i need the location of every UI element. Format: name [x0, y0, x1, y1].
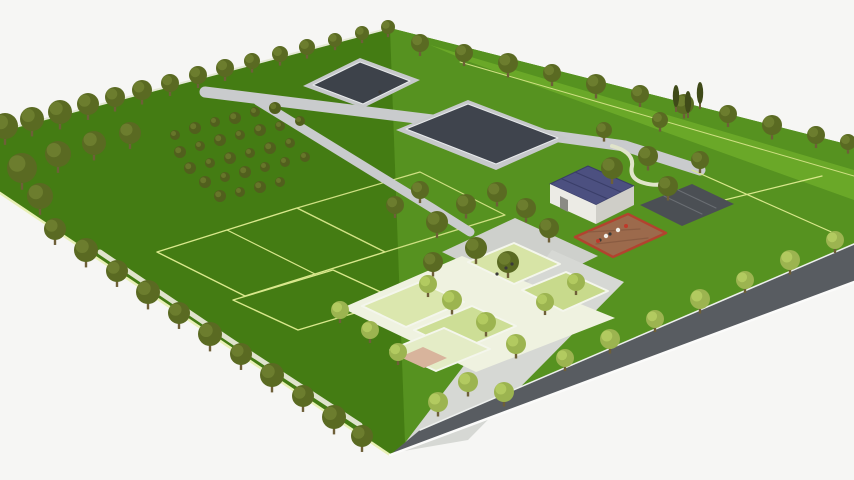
tree-cluster-gardens	[332, 302, 342, 312]
orchard-shrub	[175, 147, 181, 153]
tree-cluster-left-inner	[47, 143, 61, 157]
tree-row-topright-edge	[763, 117, 774, 128]
tree-row-topright-edge	[499, 55, 510, 66]
tree-cluster-left-inner	[120, 124, 132, 136]
orchard-shrub	[246, 149, 251, 154]
orchard-shrub	[215, 191, 221, 197]
tree-row-topright-edge	[632, 86, 642, 96]
tree-row-topleft-edge	[300, 40, 309, 49]
orchard-shrub	[221, 173, 226, 178]
tree-row-topleft-edge	[356, 27, 364, 35]
tree-row-topleft-edge	[106, 89, 117, 100]
tree-hedge-bottomleft-edge	[352, 427, 364, 439]
tree-row-topleft-edge	[162, 75, 172, 85]
tree-row-topleft-edge	[273, 47, 282, 56]
tree-cluster-gardens	[459, 374, 470, 385]
tree-cluster-plaza	[540, 220, 551, 231]
orchard-shrub	[211, 118, 216, 123]
orchard-shrub	[281, 158, 286, 163]
tree-row-topleft-edge	[329, 34, 337, 42]
tree-cluster-left-inner	[9, 155, 26, 172]
orchard-shrub	[251, 108, 256, 113]
orchard-shrub	[270, 103, 276, 109]
tree-cluster-plaza	[387, 197, 397, 207]
tree-row-topright-edge	[456, 45, 466, 55]
orchard-shrub	[261, 163, 266, 168]
tree-cluster-gardens	[429, 394, 440, 405]
orchard-shrub	[265, 143, 271, 149]
tree-row-perimeter-road	[827, 232, 837, 242]
tree-cluster-building-north	[653, 113, 662, 122]
pedestrian-figure	[608, 232, 611, 235]
pedestrian-figure	[510, 262, 513, 265]
tree-cluster-plaza	[488, 184, 499, 195]
tree-cluster-gardens	[537, 294, 547, 304]
tree-hedge-bottomleft-edge	[138, 282, 151, 295]
tree-cluster-building-north	[602, 159, 614, 171]
tree-cluster-building-north	[659, 178, 670, 189]
tree-hedge-bottomleft-edge	[107, 262, 119, 274]
tree-cluster-left-inner	[29, 185, 43, 199]
orchard-shrub	[200, 177, 206, 183]
orchard-shrub	[230, 113, 236, 119]
orchard-shrub	[255, 182, 261, 188]
tree-cluster-gardens	[420, 276, 430, 286]
orchard-shrub	[296, 117, 301, 122]
tree-hedge-bottomleft-edge	[231, 345, 243, 357]
orchard-shrub	[301, 153, 306, 158]
orchard-shrub	[236, 188, 241, 193]
orchard-shrub	[286, 139, 291, 144]
tree-row-topleft-edge	[50, 102, 63, 115]
orchard-shrub	[255, 125, 261, 131]
tree-row-topright-edge	[587, 76, 598, 87]
conifer-tree	[673, 85, 679, 107]
tree-row-topright-edge	[544, 65, 554, 75]
tree-cluster-gardens	[362, 322, 372, 332]
tree-row-perimeter-road	[557, 350, 567, 360]
orchard-shrub	[171, 131, 176, 136]
conifer-tree	[697, 82, 703, 104]
tree-cluster-plaza	[498, 253, 510, 265]
tree-row-topleft-edge	[190, 67, 200, 77]
orchard-shrub	[206, 159, 211, 164]
tree-row-topleft-edge	[382, 21, 390, 29]
tree-hedge-bottomleft-edge	[76, 240, 89, 253]
pedestrian-figure	[495, 272, 498, 275]
tree-cluster-building-north	[692, 152, 702, 162]
tree-row-perimeter-road	[781, 252, 792, 263]
terrace-parasol-white	[604, 234, 608, 238]
tree-cluster-building-north	[597, 123, 606, 132]
tree-cluster-plaza	[412, 182, 422, 192]
terrace-parasol-red	[624, 224, 628, 228]
orchard-shrub	[185, 163, 191, 169]
tree-row-topleft-edge	[78, 95, 90, 107]
tree-row-topleft-edge	[22, 109, 35, 122]
tree-row-perimeter-road	[737, 272, 747, 282]
tree-row-topright-edge	[412, 35, 422, 45]
tree-cluster-plaza	[427, 213, 439, 225]
tree-cluster-plaza	[457, 196, 468, 207]
tree-hedge-bottomleft-edge	[169, 304, 181, 316]
orchard-shrub	[276, 122, 281, 127]
tree-row-topright-edge	[720, 106, 730, 116]
site-plan-render	[0, 0, 854, 480]
pedestrian-figure	[504, 266, 507, 269]
tree-hedge-bottomleft-edge	[293, 387, 305, 399]
tree-cluster-building-north	[639, 148, 650, 159]
tree-row-perimeter-road	[647, 311, 657, 321]
tree-row-topleft-edge	[217, 60, 227, 70]
conifer-tree	[685, 91, 691, 113]
tree-row-perimeter-road	[601, 331, 612, 342]
tree-hedge-bottomleft-edge	[200, 324, 213, 337]
tree-hedge-bottomleft-edge	[45, 220, 57, 232]
tree-hedge-bottomleft-edge	[262, 365, 275, 378]
terrace-parasol-red	[596, 239, 600, 243]
tree-cluster-plaza	[517, 200, 528, 211]
tree-hedge-bottomleft-edge	[324, 407, 337, 420]
tree-cluster-left-inner	[84, 133, 97, 146]
pedestrian-figure	[378, 90, 381, 93]
tree-cluster-gardens	[507, 336, 518, 347]
orchard-shrub	[236, 131, 241, 136]
tree-cluster-gardens	[477, 314, 488, 325]
tree-cluster-gardens	[568, 274, 578, 284]
orchard-shrub	[190, 123, 196, 129]
orchard-shrub	[196, 142, 201, 147]
tree-cluster-plaza	[424, 254, 435, 265]
tree-row-topright-edge	[841, 135, 850, 144]
tree-cluster-gardens	[443, 292, 454, 303]
tree-row-topleft-edge	[245, 54, 254, 63]
orchard-shrub	[276, 178, 281, 183]
tree-row-topright-edge	[808, 127, 818, 137]
orchard-shrub	[225, 153, 231, 159]
orchard-shrub	[215, 135, 221, 141]
tree-cluster-plaza	[466, 239, 478, 251]
tree-row-perimeter-road	[691, 291, 702, 302]
terrace-parasol-white	[616, 228, 620, 232]
tree-cluster-gardens	[495, 384, 506, 395]
site-plan-canvas	[0, 0, 854, 480]
orchard-shrub	[240, 167, 246, 173]
tree-cluster-gardens	[390, 344, 400, 354]
tree-row-topleft-edge	[133, 82, 144, 93]
